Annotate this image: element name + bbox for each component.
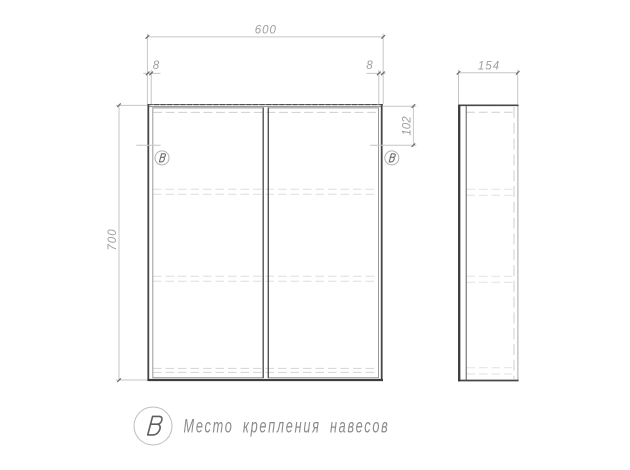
svg-text:Место крепления навесов: Место крепления навесов <box>184 417 390 438</box>
svg-text:8: 8 <box>366 60 373 72</box>
svg-text:154: 154 <box>478 60 500 72</box>
svg-text:102: 102 <box>401 116 413 136</box>
svg-text:600: 600 <box>255 24 277 36</box>
svg-text:700: 700 <box>107 228 119 250</box>
svg-text:8: 8 <box>153 60 160 72</box>
